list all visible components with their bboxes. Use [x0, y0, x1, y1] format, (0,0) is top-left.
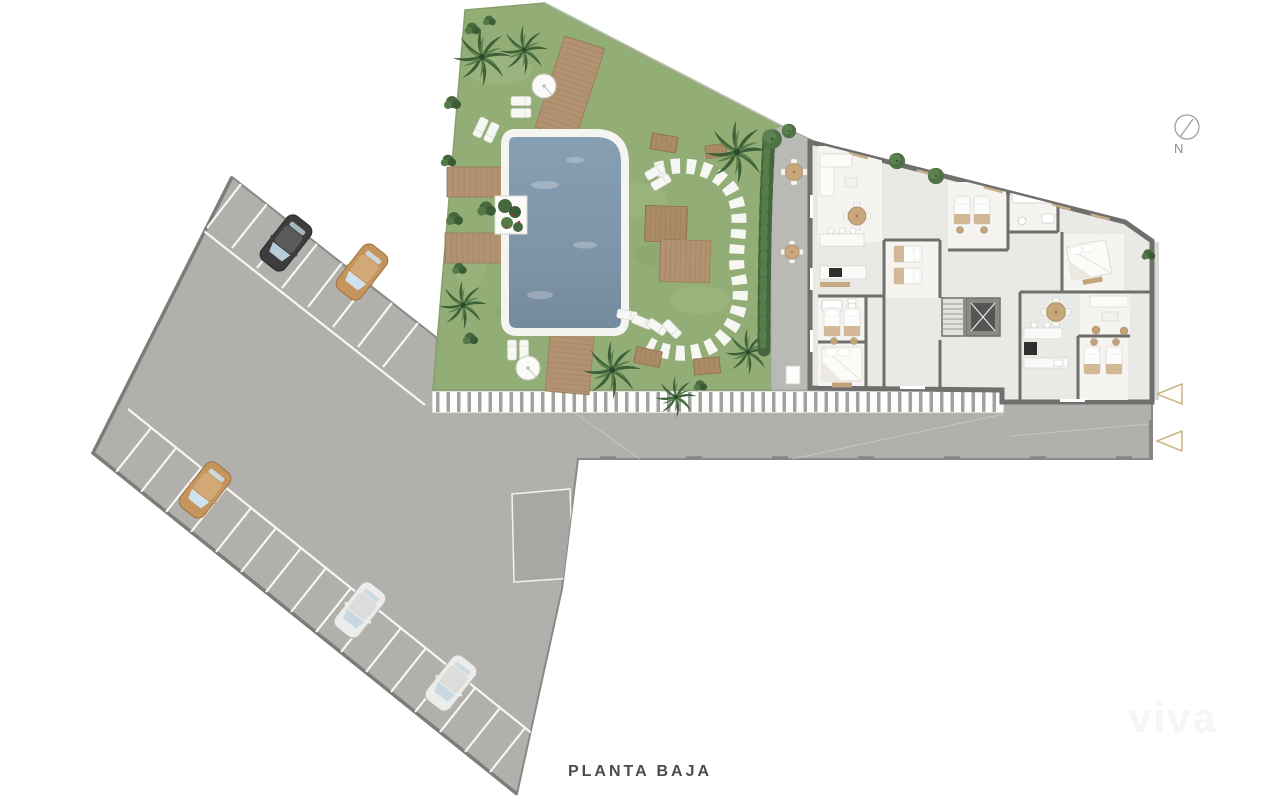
- parasol-icon: [516, 356, 540, 380]
- bed: [844, 308, 860, 336]
- bed: [824, 308, 840, 336]
- bed: [894, 268, 922, 284]
- parasol-icon: [532, 74, 556, 98]
- stairs: [942, 298, 964, 336]
- entrance-arrow-icon: [1157, 384, 1182, 404]
- garden: [433, 3, 786, 418]
- bed: [894, 246, 922, 262]
- elevator: [966, 298, 1000, 336]
- pedestrian-crosswalk: [432, 391, 1004, 413]
- apartment-building: [810, 142, 1159, 402]
- terrace: [762, 124, 812, 390]
- street-marked-bay: [512, 489, 573, 582]
- terrace-gate: [786, 366, 800, 384]
- tree-icon: [782, 124, 796, 138]
- site-plan: N viva PLANTA BAJA: [0, 0, 1280, 800]
- north-label: N: [1174, 141, 1183, 156]
- tree-icon: [928, 168, 944, 184]
- bed: [1106, 346, 1122, 374]
- tree-icon: [889, 153, 905, 169]
- entrance-arrows: [1157, 384, 1182, 451]
- bed: [974, 196, 990, 224]
- watermark: viva: [1128, 694, 1218, 741]
- entrance-arrow-icon: [1157, 431, 1182, 451]
- site-plan-page: N viva PLANTA BAJA: [0, 0, 1280, 800]
- pool-planter: [495, 196, 527, 234]
- north-compass-icon: N: [1174, 115, 1199, 156]
- bed: [954, 196, 970, 224]
- tree-icon: [762, 129, 782, 149]
- bed: [1084, 346, 1100, 374]
- plan-title: PLANTA BAJA: [568, 763, 712, 780]
